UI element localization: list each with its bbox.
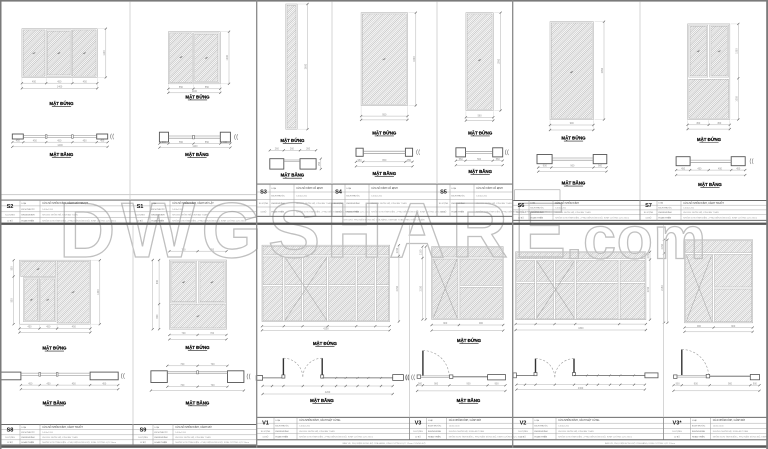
svg-text:02 BỘ: 02 BỘ bbox=[520, 436, 526, 439]
svg-text:500: 500 bbox=[11, 266, 14, 271]
svg-text:NHÔM SƠN TĨNH ĐIỆN + PHỤ KIỆN: NHÔM SƠN TĨNH ĐIỆN + PHỤ KIỆN ĐỒNG BỘ, K… bbox=[555, 216, 629, 219]
svg-text:NHÔM SƠN TĨNH ĐIỆN + PHỤ KIỆN: NHÔM SƠN TĨNH ĐIỆN + PHỤ KIỆN ĐỒNG BỘ, K… bbox=[371, 211, 445, 214]
svg-text:560: 560 bbox=[459, 158, 464, 161]
svg-text:4200: 4200 bbox=[325, 391, 331, 394]
svg-text:MẶT BẰNG: MẶT BẰNG bbox=[468, 169, 492, 174]
svg-text:LOẠI: LOẠI bbox=[275, 419, 280, 422]
svg-text:KHUNG/KÍNH: KHUNG/KÍNH bbox=[658, 211, 672, 214]
svg-text:450: 450 bbox=[736, 167, 741, 170]
svg-text:S3: S3 bbox=[260, 190, 267, 196]
svg-text:CỬA NHÔM KÍNH, CÁNH MỞ: CỬA NHÔM KÍNH, CÁNH MỞ bbox=[449, 419, 481, 422]
svg-text:250: 250 bbox=[318, 161, 321, 166]
svg-text:GHI CHÚ: PHỤ KIỆN ĐỒNG BỘ CỦA: GHI CHÚ: PHỤ KIỆN ĐỒNG BỘ CỦA HÃNG, KÍNH… bbox=[344, 218, 425, 221]
svg-text:1400: 1400 bbox=[57, 86, 63, 89]
svg-text:KÍCH THƯỚC: KÍCH THƯỚC bbox=[21, 208, 35, 211]
svg-text:450: 450 bbox=[72, 326, 77, 329]
svg-text:HOÀN THIỆN: HOÀN THIỆN bbox=[428, 436, 441, 439]
svg-text:DWGSHARE: DWGSHARE bbox=[59, 186, 566, 274]
svg-text:KÍCH THƯỚC: KÍCH THƯỚC bbox=[151, 208, 165, 211]
svg-text:MẶT BẰNG: MẶT BẰNG bbox=[50, 152, 74, 157]
svg-text:HOÀN THIỆN: HOÀN THIỆN bbox=[21, 219, 34, 222]
svg-text:LOẠI: LOẠI bbox=[271, 187, 276, 190]
svg-text:KHUNG/KÍNH: KHUNG/KÍNH bbox=[692, 430, 706, 433]
svg-text:V2: V2 bbox=[520, 421, 527, 427]
svg-text:CỬA SỔ KÍNH CỐ ĐỊNH: CỬA SỔ KÍNH CỐ ĐỊNH bbox=[371, 187, 398, 190]
svg-text:1200: 1200 bbox=[226, 54, 229, 60]
svg-text:CỬA SỔ NHÔM KÍNH, CÁNH TRUỒT: CỬA SỔ NHÔM KÍNH, CÁNH TRUỒT bbox=[683, 202, 724, 205]
svg-text:2150: 2150 bbox=[420, 285, 423, 291]
svg-text:950: 950 bbox=[382, 159, 387, 162]
svg-text:MẶT ĐỨNG: MẶT ĐỨNG bbox=[468, 130, 493, 135]
svg-text:LOẠI: LOẠI bbox=[658, 202, 663, 205]
svg-text:CỬA SỔ NHÔM KÍNH, CÁNH MỞ TRƯỢ: CỬA SỔ NHÔM KÍNH, CÁNH MỞ TRƯỢT bbox=[42, 202, 88, 205]
svg-text:MẶT BẰNG: MẶT BẰNG bbox=[186, 400, 210, 405]
svg-text:4300: 4300 bbox=[578, 327, 584, 330]
svg-text:KHUNG NHÔM HỆ, KÍNH AN TOÀN: KHUNG NHÔM HỆ, KÍNH AN TOÀN bbox=[683, 211, 719, 214]
svg-text:NHÔM SƠN TĨNH ĐIỆN + PHỤ KIỆN: NHÔM SƠN TĨNH ĐIỆN + PHỤ KIỆN ĐỒNG BỘ, K… bbox=[42, 441, 116, 444]
svg-text:1400x1200: 1400x1200 bbox=[42, 432, 54, 434]
svg-text:450: 450 bbox=[83, 139, 88, 142]
svg-text:LOẠI: LOẠI bbox=[21, 426, 26, 429]
svg-text:LOẠI: LOẠI bbox=[451, 187, 456, 190]
svg-text:CỬA SỔ NHÔM KÍNH: CỬA SỔ NHÔM KÍNH bbox=[555, 202, 579, 205]
svg-text:KHUNG NHÔM HỆ, KÍNH AN TOÀN: KHUNG NHÔM HỆ, KÍNH AN TOÀN bbox=[172, 214, 208, 217]
svg-text:260: 260 bbox=[290, 148, 295, 151]
svg-text:950: 950 bbox=[358, 159, 363, 162]
svg-text:900: 900 bbox=[418, 383, 423, 386]
svg-text:560: 560 bbox=[496, 158, 501, 161]
svg-text:KHUNG/KÍNH: KHUNG/KÍNH bbox=[346, 202, 360, 205]
svg-text:560: 560 bbox=[478, 115, 483, 118]
svg-text:KHUNG/KÍNH: KHUNG/KÍNH bbox=[428, 430, 442, 433]
svg-text:1050: 1050 bbox=[735, 96, 738, 102]
svg-text:450: 450 bbox=[83, 80, 88, 83]
svg-text:KHUNG NHÔM HỆ, KÍNH AN TOÀN: KHUNG NHÔM HỆ, KÍNH AN TOÀN bbox=[449, 430, 485, 433]
svg-text:S.LƯỢNG: S.LƯỢNG bbox=[5, 215, 15, 217]
svg-text:MẶT ĐỨNG: MẶT ĐỨNG bbox=[697, 137, 722, 142]
svg-text:900: 900 bbox=[694, 382, 699, 385]
svg-text:900: 900 bbox=[543, 165, 548, 168]
svg-text:2150: 2150 bbox=[647, 286, 650, 292]
svg-text:MẶT BẰNG: MẶT BẰNG bbox=[43, 400, 67, 405]
svg-text:450: 450 bbox=[46, 326, 51, 329]
svg-text:MẶT ĐỨNG: MẶT ĐỨNG bbox=[185, 345, 210, 350]
svg-text:02 BỘ: 02 BỘ bbox=[674, 436, 680, 439]
svg-text:KÍCH THƯỚC: KÍCH THƯỚC bbox=[530, 207, 544, 210]
svg-text:KHUNG NHÔM HỆ, KÍNH AN TOÀN: KHUNG NHÔM HỆ, KÍNH AN TOÀN bbox=[713, 430, 749, 433]
svg-text:LOẠI: LOẠI bbox=[534, 419, 539, 422]
svg-text:900: 900 bbox=[434, 383, 439, 386]
svg-text:900: 900 bbox=[697, 325, 702, 328]
svg-text:S.LƯỢNG: S.LƯỢNG bbox=[672, 431, 682, 433]
svg-text:V3: V3 bbox=[415, 421, 422, 427]
svg-text:500: 500 bbox=[11, 298, 14, 303]
svg-text:KÍCH THƯỚC: KÍCH THƯỚC bbox=[275, 425, 289, 428]
svg-text:S4: S4 bbox=[335, 190, 343, 196]
svg-text:1300: 1300 bbox=[97, 289, 100, 295]
svg-text:LOẠI: LOẠI bbox=[428, 419, 433, 422]
svg-text:LOẠI: LOẠI bbox=[530, 202, 535, 205]
svg-text:V1: V1 bbox=[262, 421, 269, 427]
svg-text:S.LƯỢNG: S.LƯỢNG bbox=[5, 437, 15, 439]
svg-text:KHUNG NHÔM HỆ, KÍNH AN TOÀN: KHUNG NHÔM HỆ, KÍNH AN TOÀN bbox=[296, 202, 332, 205]
svg-text:700: 700 bbox=[211, 384, 216, 387]
svg-text:2150: 2150 bbox=[396, 285, 399, 291]
svg-text:4300: 4300 bbox=[578, 387, 584, 390]
svg-text:550: 550 bbox=[205, 141, 210, 144]
svg-text:MẶT BẰNG: MẶT BẰNG bbox=[698, 182, 722, 187]
svg-text:KHUNG NHÔM HỆ, KÍNH AN TOÀN: KHUNG NHÔM HỆ, KÍNH AN TOÀN bbox=[42, 436, 78, 439]
svg-text:1400x1200: 1400x1200 bbox=[449, 426, 461, 428]
svg-text:1400x1200: 1400x1200 bbox=[555, 208, 567, 210]
svg-text:450: 450 bbox=[28, 382, 33, 385]
svg-text:CỬA NHÔM KÍNH, CÁNH MỞ: CỬA NHÔM KÍNH, CÁNH MỞ bbox=[713, 419, 745, 422]
svg-text:NHÔM SƠN TĨNH ĐIỆN + PHỤ KIỆN: NHÔM SƠN TĨNH ĐIỆN + PHỤ KIỆN ĐỒNG BỘ, K… bbox=[713, 436, 768, 439]
svg-text:LOẠI: LOẠI bbox=[151, 202, 156, 205]
svg-text:HOÀN THIỆN: HOÀN THIỆN bbox=[692, 436, 705, 439]
svg-text:1900: 1900 bbox=[413, 56, 416, 62]
svg-text:HOÀN THIỆN: HOÀN THIỆN bbox=[271, 211, 284, 214]
svg-text:HOÀN THIỆN: HOÀN THIỆN bbox=[451, 211, 464, 214]
svg-text:LOẠI: LOẠI bbox=[346, 187, 351, 190]
svg-text:S.LƯỢNG: S.LƯỢNG bbox=[413, 431, 423, 433]
svg-text:450: 450 bbox=[28, 326, 33, 329]
svg-text:900: 900 bbox=[495, 383, 500, 386]
svg-text:900: 900 bbox=[443, 322, 448, 325]
svg-text:1400x1200: 1400x1200 bbox=[296, 196, 308, 198]
svg-text:450: 450 bbox=[681, 167, 686, 170]
svg-text:700: 700 bbox=[182, 332, 187, 335]
svg-text:S.LƯỢNG: S.LƯỢNG bbox=[518, 431, 528, 433]
svg-text:KÍCH THƯỚC: KÍCH THƯỚC bbox=[346, 195, 360, 198]
svg-text:450: 450 bbox=[100, 139, 105, 142]
svg-text:900: 900 bbox=[479, 322, 484, 325]
svg-text:KHUNG/KÍNH: KHUNG/KÍNH bbox=[534, 430, 548, 433]
svg-text:KHUNG/KÍNH: KHUNG/KÍNH bbox=[151, 214, 165, 217]
svg-text:MẶT BẰNG: MẶT BẰNG bbox=[281, 173, 305, 178]
svg-text:KÍCH THƯỚC: KÍCH THƯỚC bbox=[428, 425, 442, 428]
svg-text:CỬA SỔ KÍNH CỐ ĐỊNH: CỬA SỔ KÍNH CỐ ĐỊNH bbox=[296, 187, 323, 190]
svg-text:02 BỘ: 02 BỘ bbox=[336, 211, 342, 214]
svg-text:02 BỘ: 02 BỘ bbox=[263, 436, 269, 439]
svg-text:.com: .com bbox=[566, 206, 706, 272]
svg-text:KHUNG NHÔM HỆ, KÍNH AN TOÀN: KHUNG NHÔM HỆ, KÍNH AN TOÀN bbox=[476, 202, 512, 205]
svg-text:450: 450 bbox=[696, 122, 701, 125]
svg-text:S.LƯỢNG: S.LƯỢNG bbox=[261, 431, 271, 433]
svg-text:900: 900 bbox=[570, 165, 575, 168]
svg-text:CỬA SỔ NHÔM KÍNH, CÁNH TRUỒT: CỬA SỔ NHÔM KÍNH, CÁNH TRUỒT bbox=[42, 426, 83, 429]
svg-text:450: 450 bbox=[72, 382, 77, 385]
svg-text:450: 450 bbox=[47, 382, 52, 385]
svg-text:KÍCH THƯỚC: KÍCH THƯỚC bbox=[451, 195, 465, 198]
svg-text:1100: 1100 bbox=[192, 145, 198, 148]
svg-text:KHUNG/KÍNH: KHUNG/KÍNH bbox=[451, 202, 465, 205]
svg-text:02 BỘ: 02 BỘ bbox=[137, 219, 143, 222]
svg-text:HOÀN THIỆN: HOÀN THIỆN bbox=[534, 436, 547, 439]
svg-text:KHUNG NHÔM HỆ, KÍNH AN TOÀN: KHUNG NHÔM HỆ, KÍNH AN TOÀN bbox=[175, 436, 211, 439]
svg-text:550: 550 bbox=[179, 141, 184, 144]
svg-text:LOẠI: LOẠI bbox=[692, 419, 697, 422]
svg-text:02 BỘ: 02 BỘ bbox=[7, 219, 13, 222]
svg-text:CỬA SỔ KÍNH CỐ ĐỊNH: CỬA SỔ KÍNH CỐ ĐỊNH bbox=[476, 187, 503, 190]
svg-text:900: 900 bbox=[156, 314, 159, 319]
svg-text:KHUNG/KÍNH: KHUNG/KÍNH bbox=[530, 211, 544, 214]
svg-text:CỬA SỔ NHÔM KÍNH, CÁNH MỞ LẬT: CỬA SỔ NHÔM KÍNH, CÁNH MỞ LẬT bbox=[172, 202, 214, 205]
svg-text:KÍCH THƯỚC: KÍCH THƯỚC bbox=[154, 431, 168, 434]
svg-text:S.LƯỢNG: S.LƯỢNG bbox=[138, 437, 148, 439]
svg-text:BẢN VẼ, PHỤ KIỆN ĐỒNG BỘ CỦA H: BẢN VẼ, PHỤ KIỆN ĐỒNG BỘ CỦA HÃNG, KÍNH … bbox=[343, 442, 426, 445]
svg-text:1400x1200: 1400x1200 bbox=[175, 432, 187, 434]
svg-text:450: 450 bbox=[32, 80, 37, 83]
svg-text:S.LƯỢNG: S.LƯỢNG bbox=[644, 212, 654, 214]
svg-text:LOẠI: LOẠI bbox=[21, 202, 26, 205]
svg-text:260: 260 bbox=[275, 148, 280, 151]
svg-text:S7: S7 bbox=[645, 203, 652, 209]
svg-text:900: 900 bbox=[570, 122, 575, 125]
svg-text:MẶT ĐỨNG: MẶT ĐỨNG bbox=[457, 338, 482, 343]
svg-text:NHÔM SƠN TĨNH ĐIỆN + PHỤ KIỆN: NHÔM SƠN TĨNH ĐIỆN + PHỤ KIỆN ĐỒNG BỘ, K… bbox=[683, 216, 757, 219]
svg-text:NHÔM SƠN TĨNH ĐIỆN + PHỤ KIỆN: NHÔM SƠN TĨNH ĐIỆN + PHỤ KIỆN ĐỒNG BỘ, K… bbox=[175, 441, 249, 444]
svg-text:KHUNG NHÔM HỆ, KÍNH AN TOÀN: KHUNG NHÔM HỆ, KÍNH AN TOÀN bbox=[555, 211, 591, 214]
svg-text:900: 900 bbox=[676, 382, 681, 385]
svg-text:S.LƯỢNG: S.LƯỢNG bbox=[516, 212, 526, 214]
svg-text:CỬA NHÔM KÍNH, VÁCH MẶT CỨNG: CỬA NHÔM KÍNH, VÁCH MẶT CỨNG bbox=[558, 419, 599, 422]
svg-text:S.LƯỢNG: S.LƯỢNG bbox=[259, 203, 269, 205]
svg-text:900: 900 bbox=[728, 382, 733, 385]
svg-text:1950: 1950 bbox=[498, 58, 501, 64]
svg-text:900: 900 bbox=[731, 325, 736, 328]
svg-text:S.LƯỢNG: S.LƯỢNG bbox=[334, 203, 344, 205]
svg-text:1400x1200: 1400x1200 bbox=[558, 426, 570, 428]
svg-text:550: 550 bbox=[179, 86, 184, 89]
svg-text:S.LƯỢNG: S.LƯỢNG bbox=[439, 203, 449, 205]
svg-text:S.LƯỢNG: S.LƯỢNG bbox=[135, 215, 145, 217]
svg-text:S6: S6 bbox=[518, 203, 525, 209]
svg-text:KHUNG/KÍNH: KHUNG/KÍNH bbox=[21, 214, 35, 217]
svg-text:MẶT BẰNG: MẶT BẰNG bbox=[457, 398, 481, 403]
svg-text:900: 900 bbox=[156, 279, 159, 284]
svg-text:450: 450 bbox=[718, 167, 723, 170]
svg-text:900: 900 bbox=[598, 165, 603, 168]
svg-text:HOÀN THIỆN: HOÀN THIỆN bbox=[530, 216, 543, 219]
svg-text:MẶT BẰNG: MẶT BẰNG bbox=[185, 152, 209, 157]
svg-text:HOÀN THIỆN: HOÀN THIỆN bbox=[275, 436, 288, 439]
svg-text:MẶT ĐỨNG: MẶT ĐỨNG bbox=[42, 346, 67, 351]
svg-text:KHUNG/KÍNH: KHUNG/KÍNH bbox=[154, 436, 168, 439]
svg-text:KÍCH THƯỚC: KÍCH THƯỚC bbox=[658, 207, 672, 210]
svg-text:MẶT ĐỨNG: MẶT ĐỨNG bbox=[561, 136, 586, 141]
svg-text:950: 950 bbox=[407, 159, 412, 162]
svg-text:KHUNG NHÔM HỆ, KÍNH AN TOÀN: KHUNG NHÔM HỆ, KÍNH AN TOÀN bbox=[558, 430, 594, 433]
svg-text:S1: S1 bbox=[137, 204, 144, 210]
svg-text:KÍCH THƯỚC: KÍCH THƯỚC bbox=[692, 425, 706, 428]
svg-text:KHUNG NHÔM HỆ, KÍNH AN TOÀN: KHUNG NHÔM HỆ, KÍNH AN TOÀN bbox=[299, 430, 335, 433]
svg-text:450: 450 bbox=[102, 382, 107, 385]
svg-text:MẶT BẰNG: MẶT BẰNG bbox=[562, 181, 586, 186]
svg-text:900: 900 bbox=[753, 382, 758, 385]
svg-text:BẢN VẼ, PHỤ KIỆN ĐỒNG BỘ CỦA H: BẢN VẼ, PHỤ KIỆN ĐỒNG BỘ CỦA HÃNG, KÍNH … bbox=[605, 442, 675, 445]
svg-text:HOÀN THIỆN: HOÀN THIỆN bbox=[151, 219, 164, 222]
svg-text:MẶT ĐỨNG: MẶT ĐỨNG bbox=[372, 130, 397, 135]
svg-text:MẶT BẰNG: MẶT BẰNG bbox=[310, 398, 334, 403]
svg-text:1400x1200: 1400x1200 bbox=[683, 208, 695, 210]
svg-text:02 BỘ: 02 BỘ bbox=[441, 211, 447, 214]
svg-text:NHÔM SƠN TĨNH ĐIỆN + PHỤ KIỆN: NHÔM SƠN TĨNH ĐIỆN + PHỤ KIỆN ĐỒNG BỘ, K… bbox=[449, 436, 523, 439]
svg-text:NHÔM SƠN TĨNH ĐIỆN + PHỤ KIỆN: NHÔM SƠN TĨNH ĐIỆN + PHỤ KIỆN ĐỒNG BỘ, K… bbox=[299, 436, 373, 439]
svg-text:2050: 2050 bbox=[601, 67, 604, 73]
svg-text:450: 450 bbox=[57, 80, 62, 83]
svg-text:MẶT BẰNG: MẶT BẰNG bbox=[372, 171, 396, 176]
svg-text:1400x1200: 1400x1200 bbox=[713, 426, 725, 428]
svg-text:02 BỘ: 02 BỘ bbox=[646, 216, 652, 219]
svg-text:S8: S8 bbox=[7, 428, 14, 434]
svg-text:MẶT ĐỨNG: MẶT ĐỨNG bbox=[280, 138, 305, 143]
svg-text:KÍCH THƯỚC: KÍCH THƯỚC bbox=[534, 425, 548, 428]
svg-text:02 BỘ: 02 BỘ bbox=[261, 211, 267, 214]
svg-text:MẶT ĐỨNG: MẶT ĐỨNG bbox=[49, 101, 74, 106]
svg-text:700: 700 bbox=[180, 384, 185, 387]
svg-text:MẶT ĐỨNG: MẶT ĐỨNG bbox=[185, 94, 210, 99]
svg-text:700: 700 bbox=[210, 332, 215, 335]
svg-text:950: 950 bbox=[382, 113, 387, 116]
svg-text:KHUNG NHÔM HỆ, KÍNH AN TOÀN: KHUNG NHÔM HỆ, KÍNH AN TOÀN bbox=[42, 214, 78, 217]
svg-text:450: 450 bbox=[33, 139, 38, 142]
svg-text:LOẠI: LOẠI bbox=[154, 426, 159, 429]
svg-text:1400: 1400 bbox=[57, 144, 63, 147]
svg-text:02 BỘ: 02 BỘ bbox=[518, 216, 524, 219]
svg-text:450: 450 bbox=[717, 122, 722, 125]
svg-text:1100: 1100 bbox=[192, 90, 198, 93]
svg-text:02 BỘ: 02 BỘ bbox=[7, 441, 13, 444]
svg-text:V3*: V3* bbox=[672, 421, 682, 427]
svg-text:NHÔM SƠN TĨNH ĐIỆN + PHỤ KIỆN: NHÔM SƠN TĨNH ĐIỆN + PHỤ KIỆN ĐỒNG BỘ, K… bbox=[558, 436, 632, 439]
svg-text:02 BỘ: 02 BỘ bbox=[415, 436, 421, 439]
svg-text:02 BỘ: 02 BỘ bbox=[140, 441, 146, 444]
svg-text:S2: S2 bbox=[7, 204, 14, 210]
svg-text:560: 560 bbox=[477, 158, 482, 161]
svg-text:1400x1200: 1400x1200 bbox=[172, 209, 184, 211]
svg-text:S9: S9 bbox=[140, 428, 147, 434]
svg-text:2600: 2600 bbox=[305, 63, 308, 69]
svg-text:MẶT ĐỨNG: MẶT ĐỨNG bbox=[313, 341, 338, 346]
svg-text:550: 550 bbox=[162, 141, 167, 144]
svg-text:NHÔM SƠN TĨNH ĐIỆN + PHỤ KIỆN: NHÔM SƠN TĨNH ĐIỆN + PHỤ KIỆN ĐỒNG BỘ, K… bbox=[42, 219, 116, 222]
svg-text:700: 700 bbox=[180, 363, 185, 366]
svg-text:260: 260 bbox=[306, 148, 311, 151]
svg-text:HOÀN THIỆN: HOÀN THIỆN bbox=[21, 441, 34, 444]
svg-text:KÍCH THƯỚC: KÍCH THƯỚC bbox=[21, 431, 35, 434]
svg-text:KHUNG NHÔM HỆ, KÍNH AN TOÀN: KHUNG NHÔM HỆ, KÍNH AN TOÀN bbox=[371, 202, 407, 205]
svg-text:1400x1200: 1400x1200 bbox=[371, 196, 383, 198]
svg-text:450: 450 bbox=[697, 167, 702, 170]
svg-text:KHUNG/KÍNH: KHUNG/KÍNH bbox=[21, 436, 35, 439]
svg-text:CỬA NHÔM KÍNH, VÁCH MẶT CỨNG: CỬA NHÔM KÍNH, VÁCH MẶT CỨNG bbox=[299, 419, 340, 422]
svg-text:450: 450 bbox=[16, 139, 21, 142]
svg-text:S5: S5 bbox=[440, 190, 447, 196]
svg-text:700: 700 bbox=[211, 363, 216, 366]
svg-text:1100: 1100 bbox=[103, 50, 106, 56]
svg-text:900: 900 bbox=[467, 383, 472, 386]
svg-text:KHUNG/KÍNH: KHUNG/KÍNH bbox=[271, 202, 285, 205]
svg-text:HOÀN THIỆN: HOÀN THIỆN bbox=[658, 216, 671, 219]
svg-text:CỬA SỔ NHÔM KÍNH, CÁNH MỞ: CỬA SỔ NHÔM KÍNH, CÁNH MỞ bbox=[175, 426, 212, 429]
svg-text:HOÀN THIỆN: HOÀN THIỆN bbox=[346, 211, 359, 214]
svg-text:1050: 1050 bbox=[735, 48, 738, 54]
svg-text:550: 550 bbox=[223, 141, 228, 144]
svg-text:KHUNG/KÍNH: KHUNG/KÍNH bbox=[275, 430, 289, 433]
svg-text:450: 450 bbox=[57, 139, 62, 142]
svg-text:1400x1200: 1400x1200 bbox=[42, 209, 54, 211]
svg-text:KÍCH THƯỚC: KÍCH THƯỚC bbox=[271, 195, 285, 198]
svg-text:550: 550 bbox=[205, 86, 210, 89]
svg-text:NHÔM SƠN TĨNH ĐIỆN + PHỤ KIỆN: NHÔM SƠN TĨNH ĐIỆN + PHỤ KIỆN ĐỒNG BỘ, K… bbox=[172, 219, 246, 222]
svg-text:1400x1200: 1400x1200 bbox=[476, 196, 488, 198]
svg-text:HOÀN THIỆN: HOÀN THIỆN bbox=[154, 441, 167, 444]
svg-text:4200: 4200 bbox=[323, 328, 329, 331]
svg-text:1400x1200: 1400x1200 bbox=[299, 426, 311, 428]
